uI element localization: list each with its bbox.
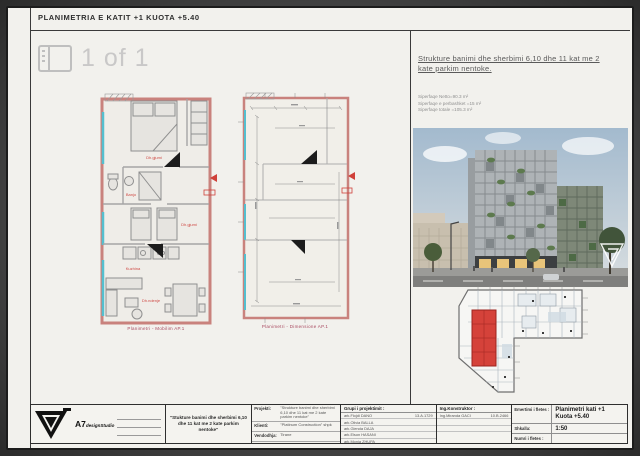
team-header: Grupi i projektimit : bbox=[341, 405, 436, 413]
team-member-license: 13.A.1729 bbox=[415, 413, 433, 418]
svg-text:Banjo: Banjo bbox=[126, 192, 137, 197]
field-label: Klienti: bbox=[254, 423, 278, 428]
plan-b-caption: Planimetri - Dimensione AP.1 bbox=[262, 324, 328, 329]
engineer-cell: Ing.Konstruktor : Ing.Miranda GACI 10.B.… bbox=[437, 405, 513, 443]
team-member: ark.Glenda DAJA bbox=[344, 426, 374, 431]
team-member: ark.Elson HASANI bbox=[344, 432, 376, 437]
page-count-label: 1 of 1 bbox=[81, 44, 150, 73]
sheet-title: PLANIMETRIA E KATIT +1 KUOTA +5.40 bbox=[38, 13, 200, 22]
engineer-name: Ing.Miranda GACI bbox=[440, 413, 471, 418]
sheet-name-value: Planimetri kati +1 Kuota +5.40 bbox=[552, 405, 608, 423]
car bbox=[543, 274, 559, 280]
plan-a-caption: Planimetri - Mobilim AP.1 bbox=[127, 326, 184, 331]
design-team-cell: Grupi i projektimit : ark.Flojdi DANO 13… bbox=[341, 405, 437, 443]
building-render bbox=[413, 128, 628, 287]
engineer-license: 10.B.2466 bbox=[491, 413, 509, 418]
sheet-number-label: Numri i fletes : bbox=[512, 434, 552, 443]
title-block: A7designStudio "Stukture banimi dhe sher… bbox=[30, 404, 628, 444]
site-key-plan bbox=[452, 286, 592, 404]
pages-icon[interactable] bbox=[38, 45, 72, 72]
engineer-header: Ing.Konstruktor : bbox=[437, 405, 512, 413]
svg-text:Dh.gjumi: Dh.gjumi bbox=[146, 155, 162, 160]
field-label: Vendodhja: bbox=[254, 433, 278, 438]
project-fields-cell: Projekti: "Strukture banimi dhe sherbimi… bbox=[252, 405, 341, 443]
project-description: Strukture banimi dhe sherbimi 6,10 dhe 1… bbox=[418, 54, 624, 74]
team-member: ark.Olivia BALLA bbox=[344, 420, 373, 425]
svg-text:Dh.ndenje: Dh.ndenje bbox=[142, 298, 161, 303]
svg-text:Dh.gjumi: Dh.gjumi bbox=[181, 222, 197, 227]
scale-label: Shkalla: bbox=[512, 424, 552, 433]
team-member: ark.Flojdi DANO bbox=[344, 413, 372, 418]
studio-logo-icon bbox=[33, 407, 73, 441]
drawing-sheet: PLANIMETRIA E KATIT +1 KUOTA +5.40 1 of … bbox=[6, 6, 634, 450]
area-line: Siperfaqe totale =105.3 m² bbox=[418, 107, 481, 114]
sheet-info-cell: Emertimi i fletes : Planimetri kati +1 K… bbox=[512, 405, 627, 443]
floor-plan-furnished: Dh.gjumi Banjo Dh.gjumi Kuzhina Dh.ndenj… bbox=[93, 92, 219, 330]
studio-name: A7designStudio bbox=[75, 419, 114, 429]
background-building bbox=[413, 223, 471, 268]
svg-text:Kuzhina: Kuzhina bbox=[126, 266, 141, 271]
highlighted-unit bbox=[472, 310, 496, 366]
area-summary: Siperfaqe Netto=90.3 m² Siperfaqe e perb… bbox=[418, 94, 481, 114]
field-value: "Platinum Construction" shpk bbox=[280, 423, 332, 428]
project-quote-cell: "Stukture banimi dhe sherbimi 6,10 dhe 1… bbox=[166, 405, 253, 443]
header-rule bbox=[30, 30, 630, 31]
field-value: "Strukture banimi dhe sherbimi 6,10 dhe … bbox=[280, 406, 338, 420]
field-value: Tirane bbox=[280, 433, 291, 438]
field-label: Projekti: bbox=[254, 406, 278, 411]
studio-contact-lines bbox=[117, 412, 161, 436]
floor-plan-dimensions bbox=[235, 92, 355, 324]
sheet-name-label: Emertimi i fletes : bbox=[512, 405, 552, 423]
studio-cell: A7designStudio bbox=[31, 405, 166, 443]
right-panel-divider bbox=[410, 30, 411, 404]
sheet-number-value bbox=[552, 434, 558, 443]
tower-side bbox=[468, 158, 476, 268]
team-member: ark.Monia ZHUPA bbox=[344, 439, 375, 443]
page-indicator: 1 of 1 bbox=[38, 44, 150, 73]
left-margin-line bbox=[30, 8, 31, 448]
scale-value: 1:50 bbox=[552, 424, 570, 433]
project-quote: "Stukture banimi dhe sherbimi 6,10 dhe 1… bbox=[166, 405, 252, 443]
